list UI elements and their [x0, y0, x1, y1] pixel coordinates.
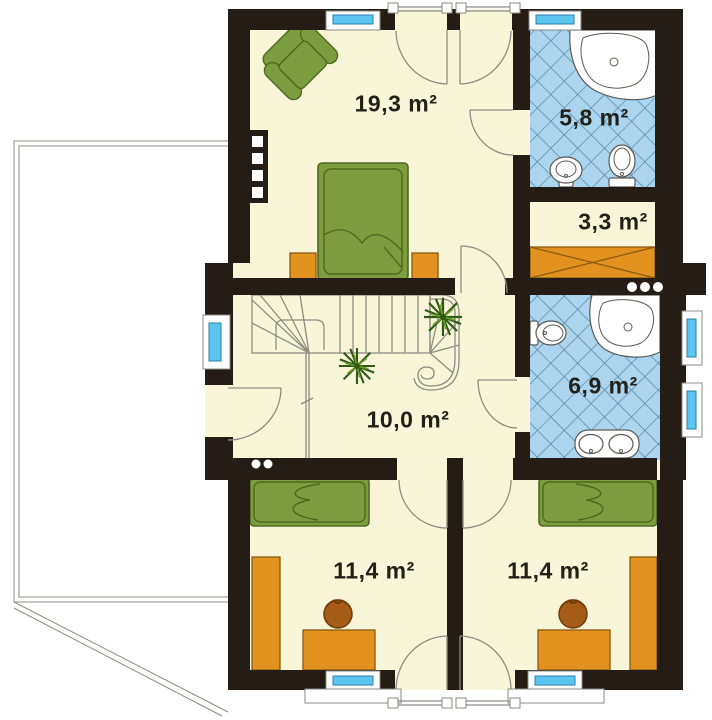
- toilet-middle: [530, 321, 566, 345]
- window-bedroom-top: [326, 11, 380, 30]
- room-label-hall: 10,0 m²: [367, 407, 450, 434]
- window-bathroom-top: [529, 11, 581, 30]
- desk-bottom-left: [303, 630, 375, 670]
- nightstand-right: [412, 253, 438, 280]
- bed-bottom-right: [539, 478, 657, 526]
- room-label-bedroom-top: 19,3 m²: [355, 91, 438, 118]
- chair-bottom-left: [324, 600, 352, 628]
- window-hall-left: [203, 315, 230, 369]
- room-label-bedroom-bottom-right: 11,4 m²: [507, 558, 589, 585]
- bed-bottom-left: [250, 478, 369, 526]
- double-sink: [575, 430, 639, 458]
- plant-1: [424, 298, 462, 336]
- wardrobe-closet: [530, 247, 655, 278]
- wardrobe-bottom-right: [630, 557, 657, 670]
- room-label-bedroom-bottom-left: 11,4 m²: [333, 558, 415, 585]
- room-label-closet: 3,3 m²: [578, 209, 647, 236]
- terrace-outline: [14, 141, 228, 716]
- desk-bottom-right: [538, 630, 610, 670]
- room-label-bathroom-middle: 6,9 m²: [568, 373, 637, 400]
- floor-plan: 19,3 m² 5,8 m² 3,3 m² 6,9 m² 10,0 m² 11,…: [0, 0, 712, 720]
- wardrobe-bottom-left: [252, 557, 280, 670]
- room-label-bathroom-top: 5,8 m²: [559, 105, 628, 132]
- window-bathroom-right-2: [682, 383, 702, 437]
- chair-bottom-right: [559, 600, 587, 628]
- double-bed: [318, 163, 408, 280]
- toilet-top: [609, 145, 635, 187]
- window-bathroom-right-1: [682, 311, 702, 365]
- nightstand-left: [290, 253, 316, 280]
- plant-2: [339, 348, 375, 384]
- chimney: [248, 130, 268, 203]
